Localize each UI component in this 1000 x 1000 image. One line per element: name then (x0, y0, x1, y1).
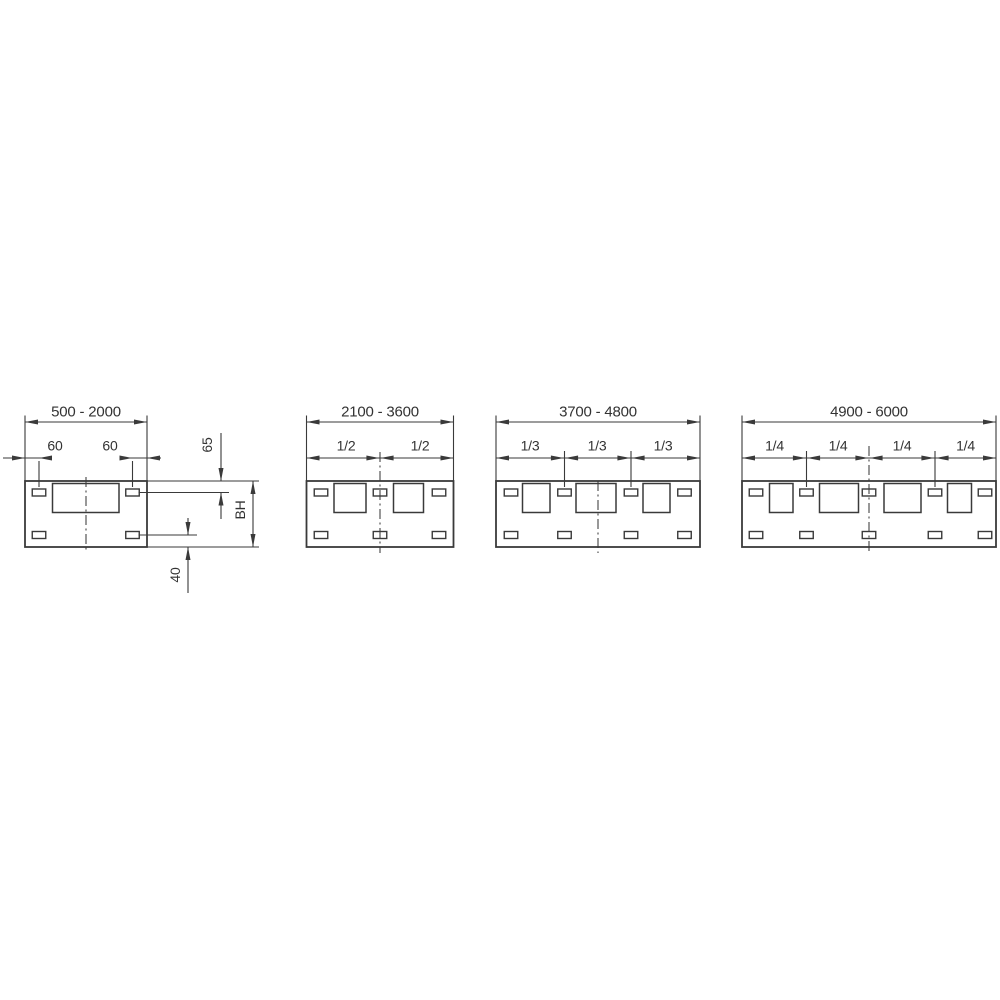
range-label: 4900 - 6000 (830, 404, 908, 421)
square-cutout (334, 484, 366, 513)
fraction-label: 1/4 (829, 438, 848, 454)
mounting-slot-bottom (928, 532, 942, 539)
dimension-arrow (25, 420, 38, 425)
dimension-arrow (39, 456, 52, 461)
fraction-label: 1/3 (521, 438, 540, 454)
dimension-arrow (632, 456, 645, 461)
offset-label: 60 (47, 438, 63, 454)
fraction-label: 1/4 (956, 438, 975, 454)
dimension-arrow (870, 456, 883, 461)
dimension-arrow (742, 420, 755, 425)
mounting-slot-top (32, 489, 46, 496)
dimension-arrow (921, 456, 934, 461)
dimension-arrow (186, 522, 191, 535)
dimension-arrow (742, 456, 755, 461)
square-cutout (523, 484, 551, 513)
dimension-arrow (793, 456, 806, 461)
height-label: BH (232, 500, 248, 519)
dimension-arrow (219, 493, 224, 506)
offset-label: 60 (102, 438, 118, 454)
mounting-slot-bottom (504, 532, 518, 539)
dimension-arrow (251, 534, 256, 547)
mounting-slot-top (504, 489, 518, 496)
dimension-arrow (983, 420, 996, 425)
mounting-slot-top (314, 489, 328, 496)
diagram-canvas: 500 - 2000606065BH402100 - 36001/21/2370… (0, 0, 1000, 1000)
dimension-arrow (307, 420, 320, 425)
fraction-label: 1/4 (893, 438, 912, 454)
product-dimension-drawing: 500 - 2000606065BH402100 - 36001/21/2370… (0, 0, 1000, 1000)
range-label: 2100 - 3600 (341, 404, 419, 421)
bottom-offset-label: 40 (167, 567, 183, 583)
mounting-slot-bottom (126, 532, 140, 539)
square-cutout (770, 484, 794, 513)
top-offset-label: 65 (199, 437, 215, 453)
dimension-arrow (617, 456, 630, 461)
dimension-arrow (219, 468, 224, 481)
dimension-arrow (307, 456, 320, 461)
square-cutout (820, 484, 859, 513)
dimension-arrow (366, 456, 379, 461)
mounting-slot-bottom (624, 532, 638, 539)
mounting-slot-bottom (800, 532, 814, 539)
mounting-slot-top (624, 489, 638, 496)
dimension-arrow (551, 456, 564, 461)
dimension-arrow (496, 456, 509, 461)
square-cutout (643, 484, 670, 513)
mounting-slot-bottom (432, 532, 446, 539)
dimension-arrow (807, 456, 820, 461)
square-cutout (884, 484, 921, 513)
mounting-slot-bottom (32, 532, 46, 539)
mounting-slot-bottom (678, 532, 692, 539)
mounting-slot-bottom (978, 532, 992, 539)
dimension-arrow (983, 456, 996, 461)
dimension-arrow (251, 481, 256, 494)
dimension-arrow (936, 456, 949, 461)
dimension-arrow (496, 420, 509, 425)
dimension-arrow (855, 456, 868, 461)
range-label: 3700 - 4800 (559, 404, 637, 421)
dimension-arrow (441, 420, 454, 425)
square-cutout (394, 484, 424, 513)
fraction-label: 1/3 (588, 438, 607, 454)
mounting-slot-top (432, 489, 446, 496)
mounting-slot-top (678, 489, 692, 496)
dimension-arrow (687, 456, 700, 461)
mounting-slot-bottom (314, 532, 328, 539)
mounting-slot-bottom (749, 532, 763, 539)
mounting-slot-top (978, 489, 992, 496)
mounting-slot-bottom (558, 532, 572, 539)
mounting-slot-top (558, 489, 572, 496)
fraction-label: 1/2 (337, 438, 356, 454)
dimension-arrow (687, 420, 700, 425)
fraction-label: 1/2 (411, 438, 430, 454)
dimension-arrow (120, 456, 133, 461)
square-cutout (576, 484, 616, 513)
dimension-arrow (147, 456, 160, 461)
mounting-slot-top (749, 489, 763, 496)
dimension-arrow (12, 456, 25, 461)
dimension-arrow (134, 420, 147, 425)
dimension-arrow (186, 547, 191, 560)
mounting-slot-top (928, 489, 942, 496)
range-label: 500 - 2000 (51, 404, 121, 421)
dimension-arrow (441, 456, 454, 461)
dimension-arrow (381, 456, 394, 461)
square-cutout (948, 484, 972, 513)
mounting-slot-top (800, 489, 814, 496)
mounting-slot-top (126, 489, 140, 496)
fraction-label: 1/3 (654, 438, 673, 454)
fraction-label: 1/4 (765, 438, 784, 454)
dimension-arrow (565, 456, 578, 461)
